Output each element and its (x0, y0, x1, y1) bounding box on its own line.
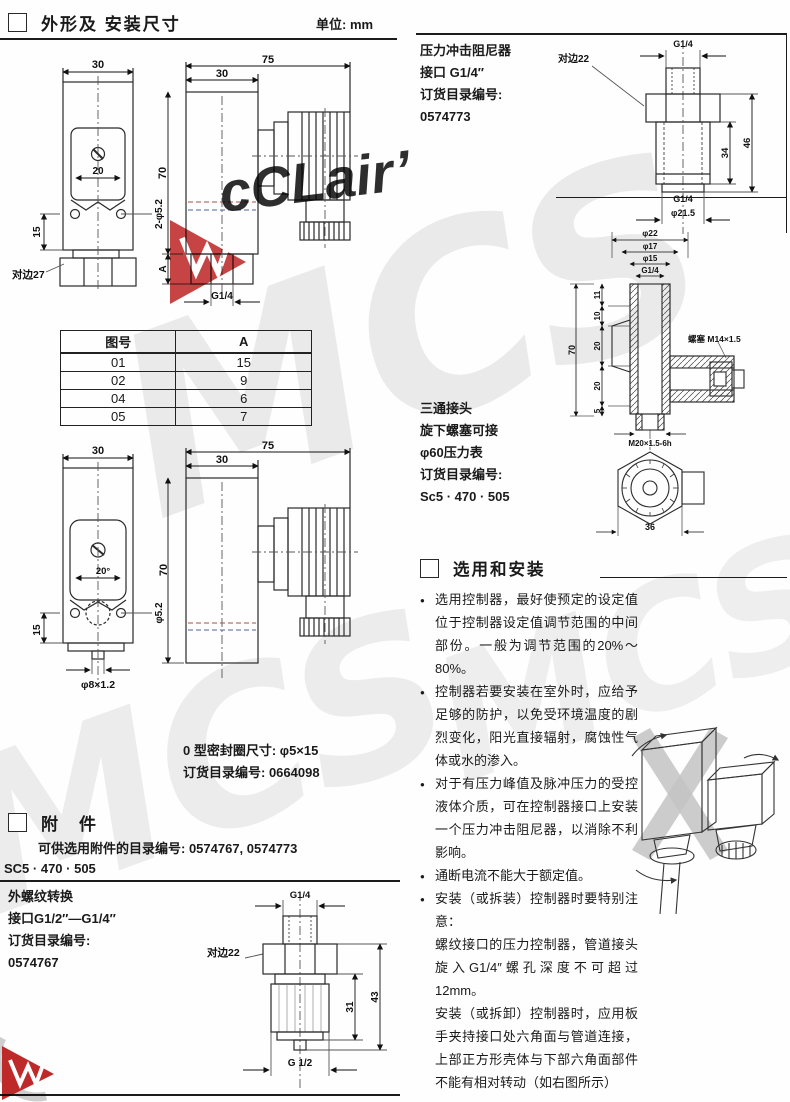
dim-label: φ5.2 (154, 602, 165, 623)
cell: 02 (61, 372, 176, 390)
damper-title: 压力冲击阻尼器 (420, 40, 511, 62)
cell: 04 (61, 390, 176, 408)
dim-label: 20 (593, 381, 602, 390)
section-dimensions: 外形及 安装尺寸 (8, 10, 181, 35)
dim-label: G1/4 (290, 890, 311, 901)
dim-label: 75 (262, 54, 274, 66)
corner-logo-graphic (0, 1036, 80, 1102)
damper-catalog-label: 订货目录编号: (420, 84, 511, 106)
cclair-logo-graphic: cCLair’ (160, 120, 460, 330)
note-paragraph: 螺纹接口的压力控制器，管道接头旋入G1/4″螺孔深度不可超过12mm。 (420, 933, 638, 1002)
list-item: 控制器若要安装在室外时，应给予足够的防护，以免受环境温度的剧烈变化，阳光直接辐射… (420, 680, 638, 772)
corner-logo-fragment (0, 1036, 80, 1102)
dim-label: 20 (593, 341, 602, 350)
cell: 05 (61, 408, 176, 426)
accessories-rule (0, 880, 400, 882)
dim-label: φ15 (643, 254, 658, 263)
accessories-series: SC5 · 470 · 505 (4, 858, 96, 880)
dim-label: 5 (593, 408, 602, 413)
dim-label: 30 (92, 445, 104, 457)
dim-label: G1/4 (673, 39, 693, 49)
install-notes-list: 选用控制器，最好使预定的设定值位于控制器设定值调节范围的中间部份。一般为调节范围… (420, 588, 638, 1094)
cell: 7 (176, 408, 312, 426)
table-row: 046 (61, 390, 312, 408)
tee-note1: 旋下螺塞可接 (420, 420, 510, 442)
list-item: 对于有压力峰值及脉冲压力的受控液体介质，可在控制器接口上安装一个压力冲击阻尼器，… (420, 772, 638, 864)
tee-text: 三通接头 旋下螺塞可接 φ60压力表 订货目录编号: Sc5 · 470 · 5… (420, 398, 510, 508)
dim-label: G 1/2 (288, 1058, 313, 1069)
dim-label: φ17 (643, 242, 658, 251)
x-cross-icon (632, 728, 728, 860)
adapter-catalog-no: 0574767 (8, 952, 116, 974)
illustration-no-rotation (626, 704, 790, 914)
section-checkbox-icon (8, 13, 27, 32)
dim-label: 34 (720, 147, 731, 158)
oring-catalog-no: 订货目录编号: 0664098 (183, 762, 320, 784)
dim-label: M20×1.5-6h (628, 439, 671, 448)
tee-catalog-no: Sc5 · 470 · 505 (420, 486, 510, 508)
table-row: 057 (61, 408, 312, 426)
dim-label: 36 (645, 522, 655, 532)
install-heading-underline (600, 577, 787, 578)
damper-port: 接口 G1/4″ (420, 62, 511, 84)
adapter-title: 外螺纹转换 (8, 886, 116, 908)
dim-label: G1/4 (673, 194, 693, 204)
adapter-ports: 接口G1/2″—G1/4″ (8, 908, 116, 930)
dim-label: 30 (216, 68, 228, 80)
note-paragraph: 安装（或拆卸）控制器时，应用板手夹持接口处六角面与管道连接，上部正方形壳体与下部… (420, 1002, 638, 1094)
dim-label: φ22 (642, 228, 658, 238)
dim-label: 20 (92, 166, 104, 177)
dim-label: 15 (32, 624, 43, 636)
list-item: 选用控制器，最好使预定的设定值位于控制器设定值调节范围的中间部份。一般为调节范围… (420, 588, 638, 680)
header-rule-left (0, 38, 397, 40)
dim-label: 螺塞 M14×1.5 (688, 334, 741, 344)
oring-size: 0 型密封圈尺寸: φ5×15 (183, 740, 320, 762)
section-checkbox-icon (8, 813, 27, 832)
col-figure-no: 图号 (61, 331, 176, 354)
logo-triangle-icon (170, 220, 246, 304)
section-title: 外形及 安装尺寸 (41, 10, 181, 35)
dim-label: 10 (593, 311, 602, 320)
section-title: 选用和安装 (453, 556, 546, 580)
dim-label: 30 (216, 454, 228, 466)
table-row: 0115 (61, 353, 312, 372)
drawing-adapter: G1/4 对边22 31 43 G 1/2 (205, 888, 405, 1098)
adapter-catalog-label: 订货目录编号: (8, 930, 116, 952)
adapter-text: 外螺纹转换 接口G1/2″—G1/4″ 订货目录编号: 0574767 (8, 886, 116, 974)
dim-label: 15 (32, 226, 43, 238)
dim-label: 70 (158, 564, 170, 576)
tee-title: 三通接头 (420, 398, 510, 420)
dim-label: 43 (370, 991, 381, 1003)
damper-text: 压力冲击阻尼器 接口 G1/4″ 订货目录编号: 0574773 (420, 40, 511, 128)
dim-label: 20° (96, 566, 111, 577)
dim-label: 70 (567, 345, 577, 355)
cell: 01 (61, 353, 176, 372)
tee-note2: φ60压力表 (420, 442, 510, 464)
datasheet-page: { "header": {"title": "外形及 安装尺寸", "unit"… (0, 0, 790, 1102)
drawing-tee-section: φ22 φ17 φ15 G1/4 70 11 10 20 20 5 螺塞 M14… (550, 224, 790, 542)
dim-label: 对边22 (558, 52, 590, 65)
figure-a-table: 图号 A 0115 029 046 057 (60, 330, 312, 426)
dim-label: 46 (742, 138, 753, 149)
list-item: 安装（或拆装）控制器时要特别注意： (420, 887, 638, 933)
cell: 9 (176, 372, 312, 390)
dim-label: G1/4 (641, 266, 659, 275)
drawing-switch-spigot: 30 20° φ5.2 15 φ8×1.2 75 30 70 (6, 438, 406, 738)
section-install: 选用和安装 (420, 556, 546, 580)
table-row: 029 (61, 372, 312, 390)
list-item: 通断电流不能大于额定值。 (420, 864, 638, 887)
dim-label: 30 (92, 59, 104, 71)
dim-label: 75 (262, 440, 274, 452)
cclair-logo-watermark: cCLair’ (160, 120, 460, 330)
section-title: 附 件 (41, 810, 98, 835)
tee-catalog-label: 订货目录编号: (420, 464, 510, 486)
dim-label: 31 (345, 1001, 356, 1013)
table-header-row: 图号 A (61, 331, 312, 354)
oring-note: 0 型密封圈尺寸: φ5×15 订货目录编号: 0664098 (183, 740, 320, 784)
unit-label: 单位: mm (316, 14, 373, 33)
section-accessories: 附 件 (8, 810, 98, 835)
brand-wordmark: cCLair’ (216, 138, 416, 224)
cell: 15 (176, 353, 312, 372)
dim-label: 对边27 (12, 268, 45, 281)
cell: 6 (176, 390, 312, 408)
dim-label: φ21.5 (671, 208, 695, 218)
col-a: A (176, 331, 312, 354)
section-checkbox-icon (420, 559, 439, 578)
dim-label: φ8×1.2 (81, 679, 115, 691)
drawing-damper: 对边22 G1/4 34 46 G1/4 φ21.5 (558, 34, 790, 256)
dim-label: 对边22 (207, 946, 240, 959)
dim-label: 11 (593, 290, 602, 299)
accessories-catalog: 可供选用附件的目录编号: 0574767, 0574773 (38, 838, 297, 860)
